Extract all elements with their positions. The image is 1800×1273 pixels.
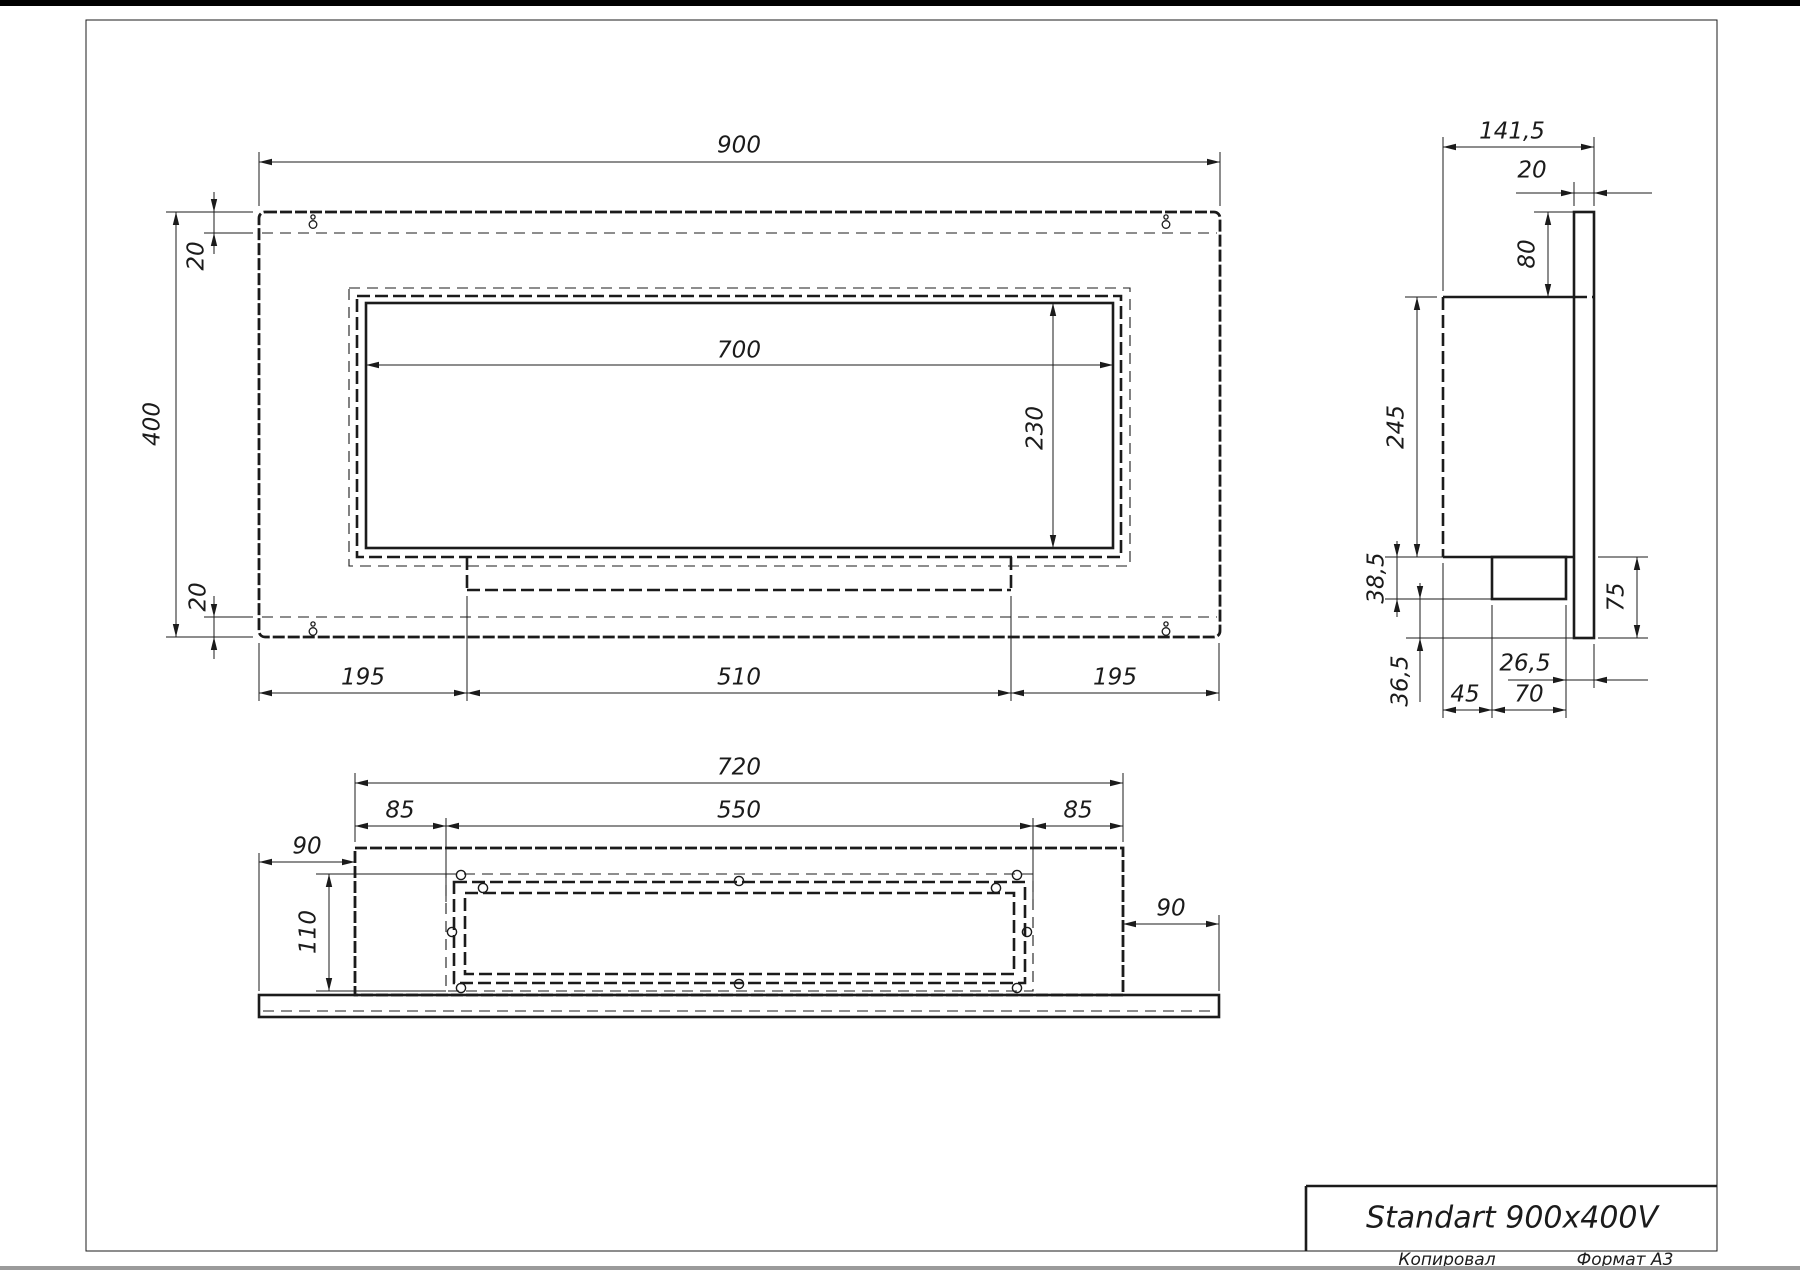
keyhole-icon — [309, 221, 317, 229]
keyhole-icon — [311, 215, 315, 219]
dim-front-bottom-offset: 20 — [188, 582, 211, 611]
drawing-canvas: 900 400 20 20 700 230 195 510 195 141,5 … — [0, 0, 1800, 1273]
dim-bottom-overhang-left: 90 — [292, 836, 321, 859]
keyhole-icon — [1164, 215, 1168, 219]
dim-side-body-height: 245 — [1386, 405, 1409, 449]
screw-hole-icon — [456, 870, 465, 879]
keyhole-icon — [309, 628, 317, 636]
dim-front-left-margin: 195 — [341, 667, 385, 690]
dim-bottom-flange-left: 85 — [385, 800, 414, 823]
dim-side-plate-top-drop: 80 — [1517, 239, 1540, 268]
dim-side-below-tray-gap: 36,5 — [1390, 655, 1413, 706]
dim-side-plate-thickness: 20 — [1517, 160, 1546, 183]
dim-front-top-offset: 20 — [186, 241, 209, 270]
title-block-part-name: Standart 900x400V — [1366, 1201, 1658, 1236]
cad-linework — [0, 0, 1800, 1273]
dim-front-overall-height: 400 — [142, 402, 165, 446]
screw-hole-icon — [1012, 870, 1021, 879]
dim-bottom-flange-right: 85 — [1063, 800, 1092, 823]
dim-front-overall-width: 900 — [717, 135, 761, 158]
screenshot-bottom-edge — [0, 1266, 1800, 1270]
dim-bottom-cutout-depth: 110 — [298, 910, 321, 954]
dim-side-tray-width: 70 — [1514, 684, 1543, 707]
dim-front-burner-width: 510 — [717, 667, 761, 690]
keyhole-icon — [1164, 622, 1168, 626]
dim-front-right-margin: 195 — [1093, 667, 1137, 690]
dim-side-overall-depth: 141,5 — [1479, 121, 1545, 144]
keyhole-icon — [1162, 221, 1170, 229]
dim-bottom-overhang-right: 90 — [1156, 898, 1185, 921]
dim-front-opening-height: 230 — [1025, 406, 1048, 450]
screw-hole-icon — [447, 927, 456, 936]
dim-bottom-cutout-width: 550 — [717, 800, 761, 823]
dim-side-tray-plate-gap: 26,5 — [1499, 653, 1550, 676]
screw-hole-icon — [478, 883, 487, 892]
dim-bottom-body-width: 720 — [717, 757, 761, 780]
dim-side-tray-offset: 45 — [1450, 684, 1479, 707]
keyhole-icon — [311, 622, 315, 626]
dim-side-tray-depth: 38,5 — [1366, 552, 1389, 603]
dim-front-opening-width: 700 — [717, 340, 761, 363]
keyhole-icon — [1162, 628, 1170, 636]
dim-side-plate-bottom-drop: 75 — [1606, 582, 1629, 611]
screw-hole-icon — [991, 883, 1000, 892]
screw-hole-icon — [456, 983, 465, 992]
